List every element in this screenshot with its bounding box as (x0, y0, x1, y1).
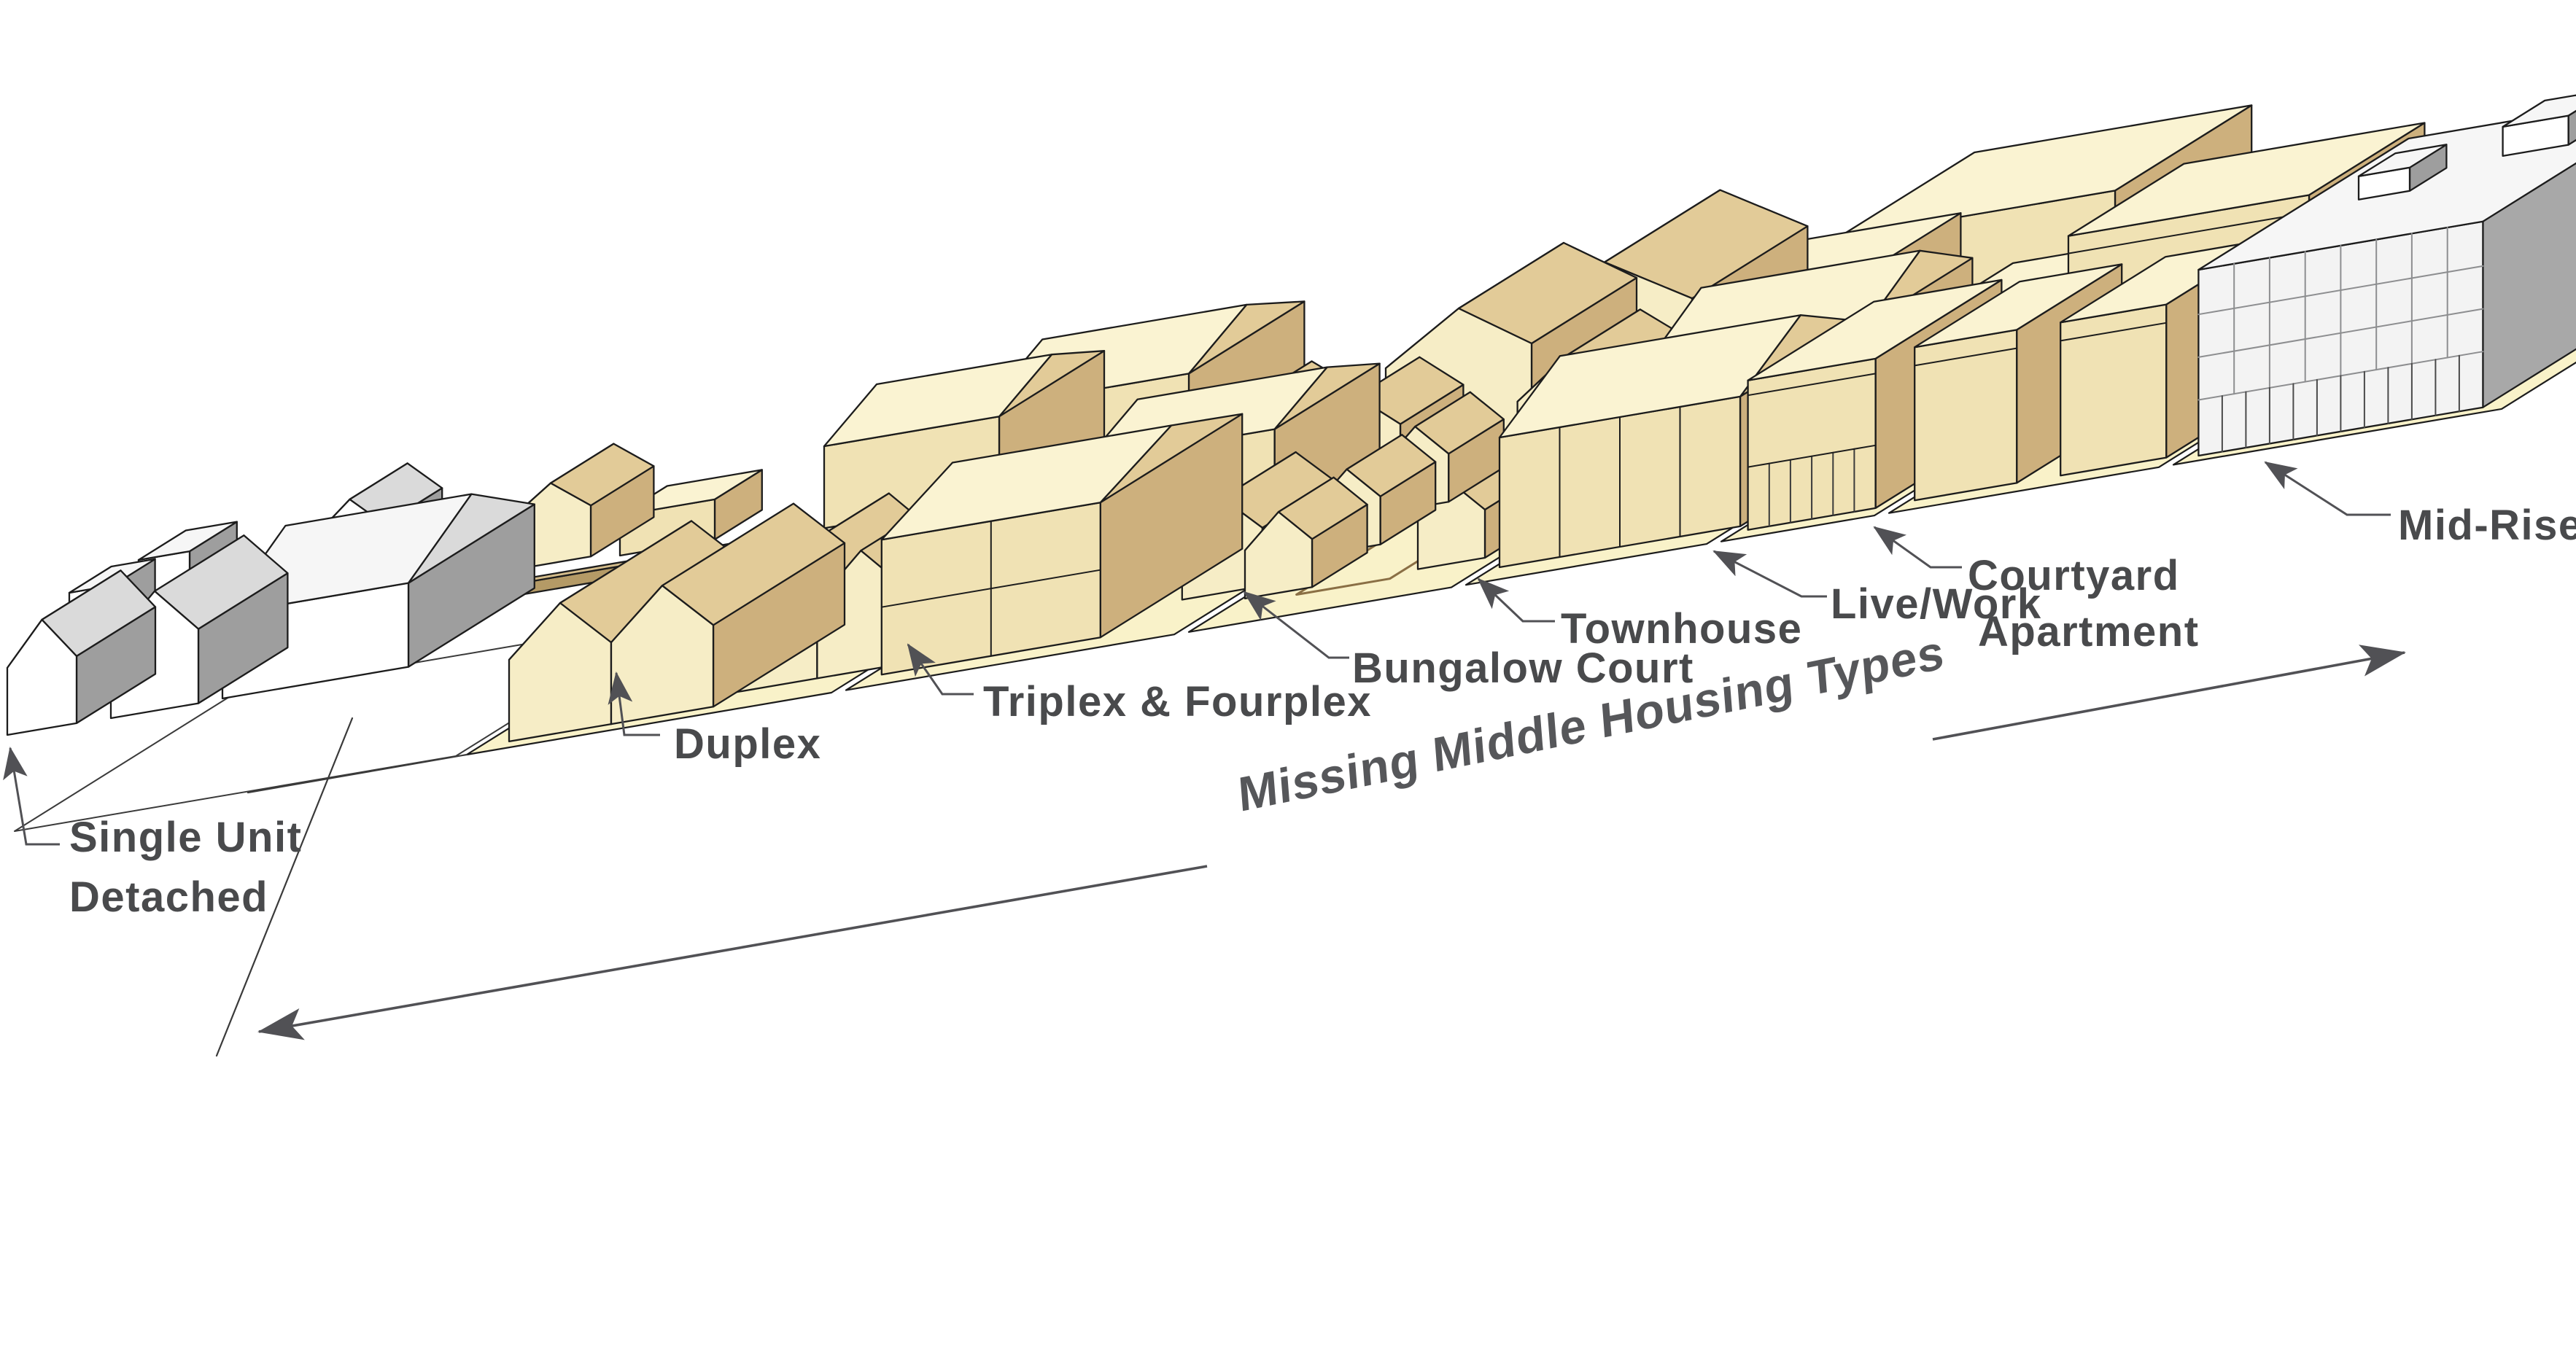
label-triplex-fourplex: Triplex & Fourplex (983, 672, 1372, 732)
label-courtyard-line1: Courtyard (1968, 552, 2180, 599)
label-single-unit-detached: Single Unit Detached (69, 808, 302, 928)
leader-midrise (2265, 462, 2391, 515)
leader-livework (1714, 551, 1827, 596)
label-single-unit-line1: Single Unit (69, 814, 302, 861)
missing-middle-diagram: Single Unit Detached Duplex Triplex & Fo… (0, 0, 2576, 1370)
span-arrow-left (259, 866, 1207, 1032)
leader-courtyard (1874, 527, 1962, 567)
label-courtyard-apartment: Courtyard Apartment (1968, 548, 2200, 660)
label-townhouse: Townhouse (1561, 599, 1802, 659)
label-single-unit-line2: Detached (69, 868, 302, 927)
leader-townhouse (1478, 579, 1555, 621)
single-unit-buildings (7, 463, 535, 735)
label-courtyard-line2: Apartment (1978, 604, 2200, 661)
label-duplex: Duplex (674, 715, 821, 774)
span-arrow-right (1933, 653, 2405, 739)
label-mid-rise: Mid-Rise (2398, 496, 2576, 556)
